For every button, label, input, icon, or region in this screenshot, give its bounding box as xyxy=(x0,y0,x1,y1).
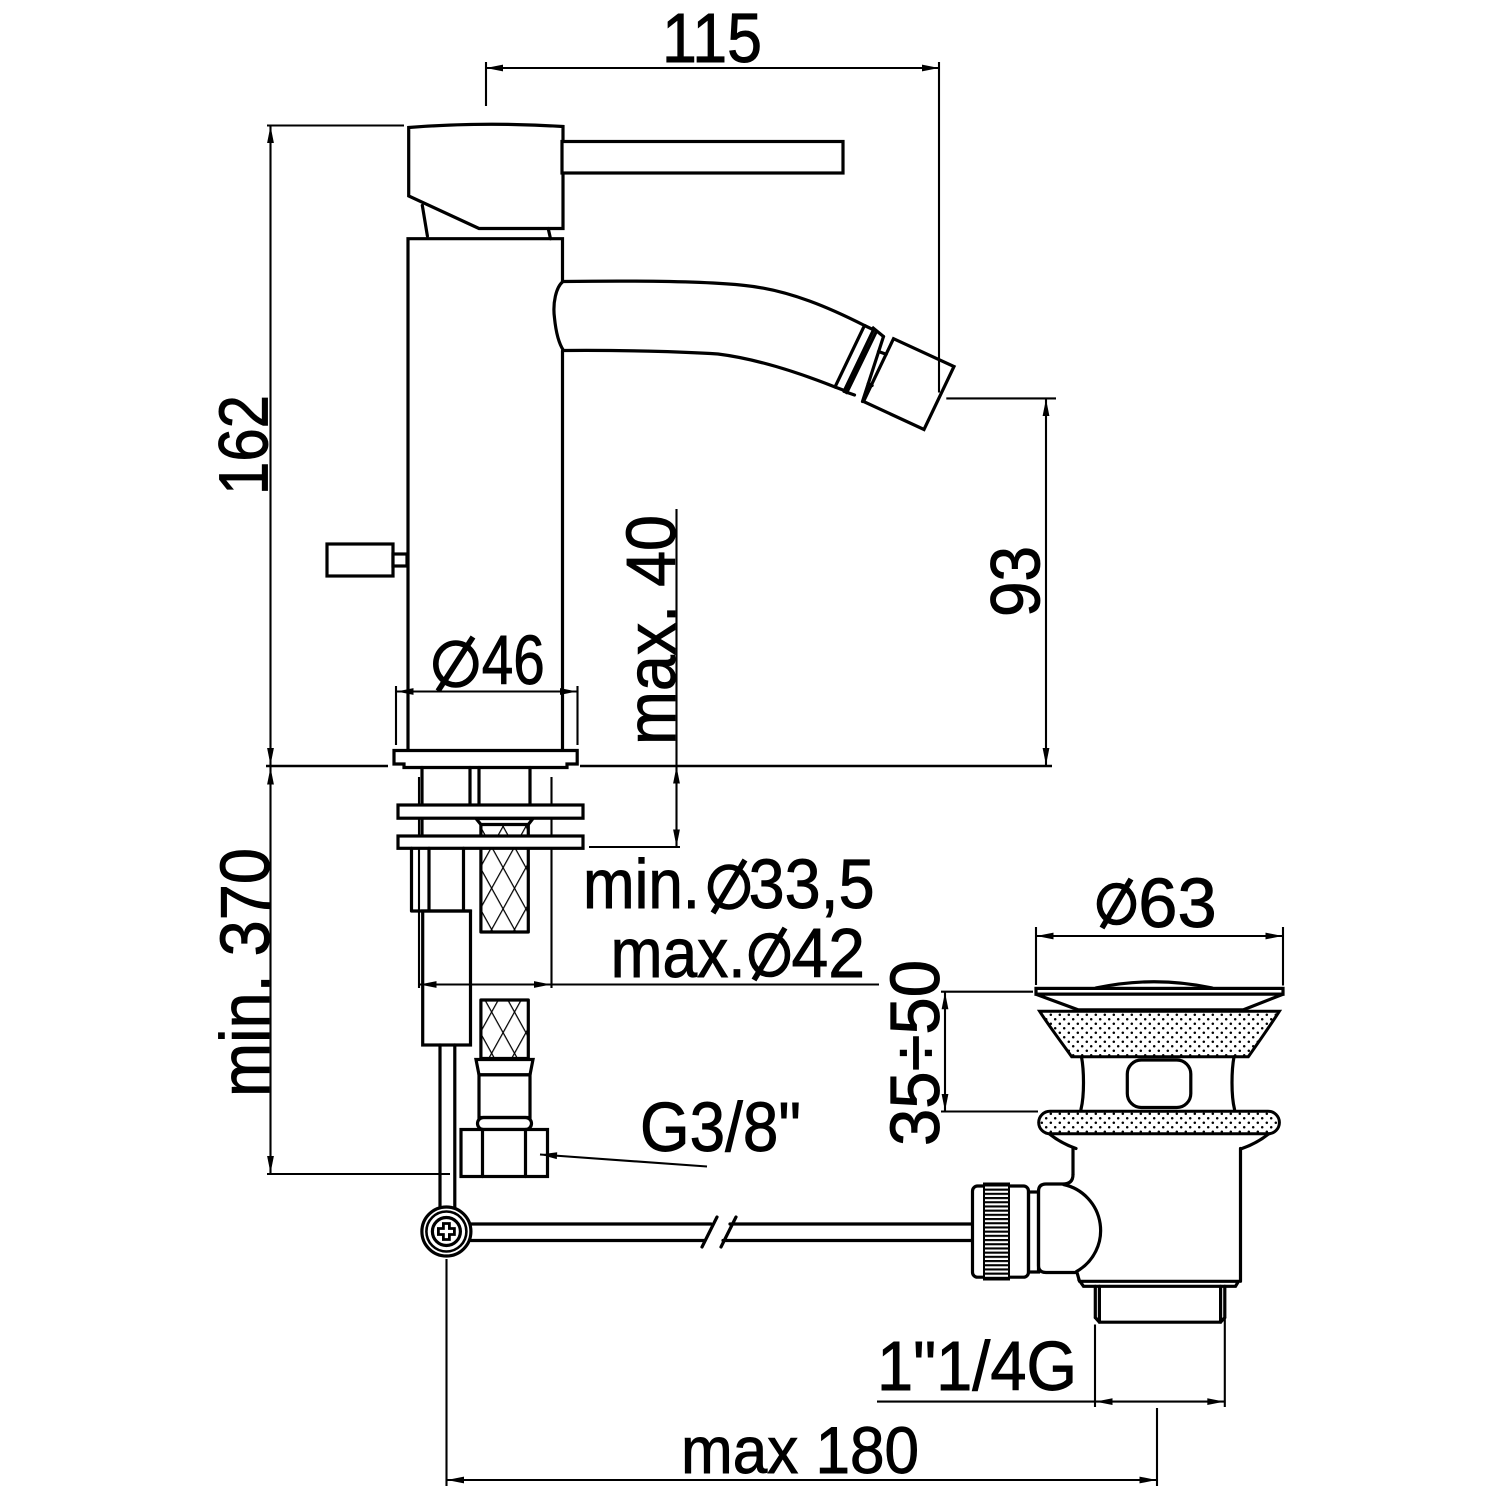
svg-text:min. 370: min. 370 xyxy=(206,848,284,1097)
svg-text:max. 40: max. 40 xyxy=(612,515,690,745)
svg-text:46: 46 xyxy=(482,621,545,699)
svg-text:162: 162 xyxy=(205,395,283,495)
svg-text:max.: max. xyxy=(611,914,746,992)
svg-text:93: 93 xyxy=(977,546,1055,617)
svg-text:115: 115 xyxy=(662,0,762,77)
svg-text:min.: min. xyxy=(583,845,700,923)
svg-text:33,5: 33,5 xyxy=(749,845,875,923)
svg-text:63: 63 xyxy=(1138,864,1216,942)
svg-text:42: 42 xyxy=(792,914,866,992)
svg-text:G3/8": G3/8" xyxy=(640,1088,801,1166)
svg-text:1"1/4G: 1"1/4G xyxy=(877,1327,1077,1405)
svg-text:35÷50: 35÷50 xyxy=(876,960,954,1146)
svg-text:max 180: max 180 xyxy=(681,1413,919,1487)
